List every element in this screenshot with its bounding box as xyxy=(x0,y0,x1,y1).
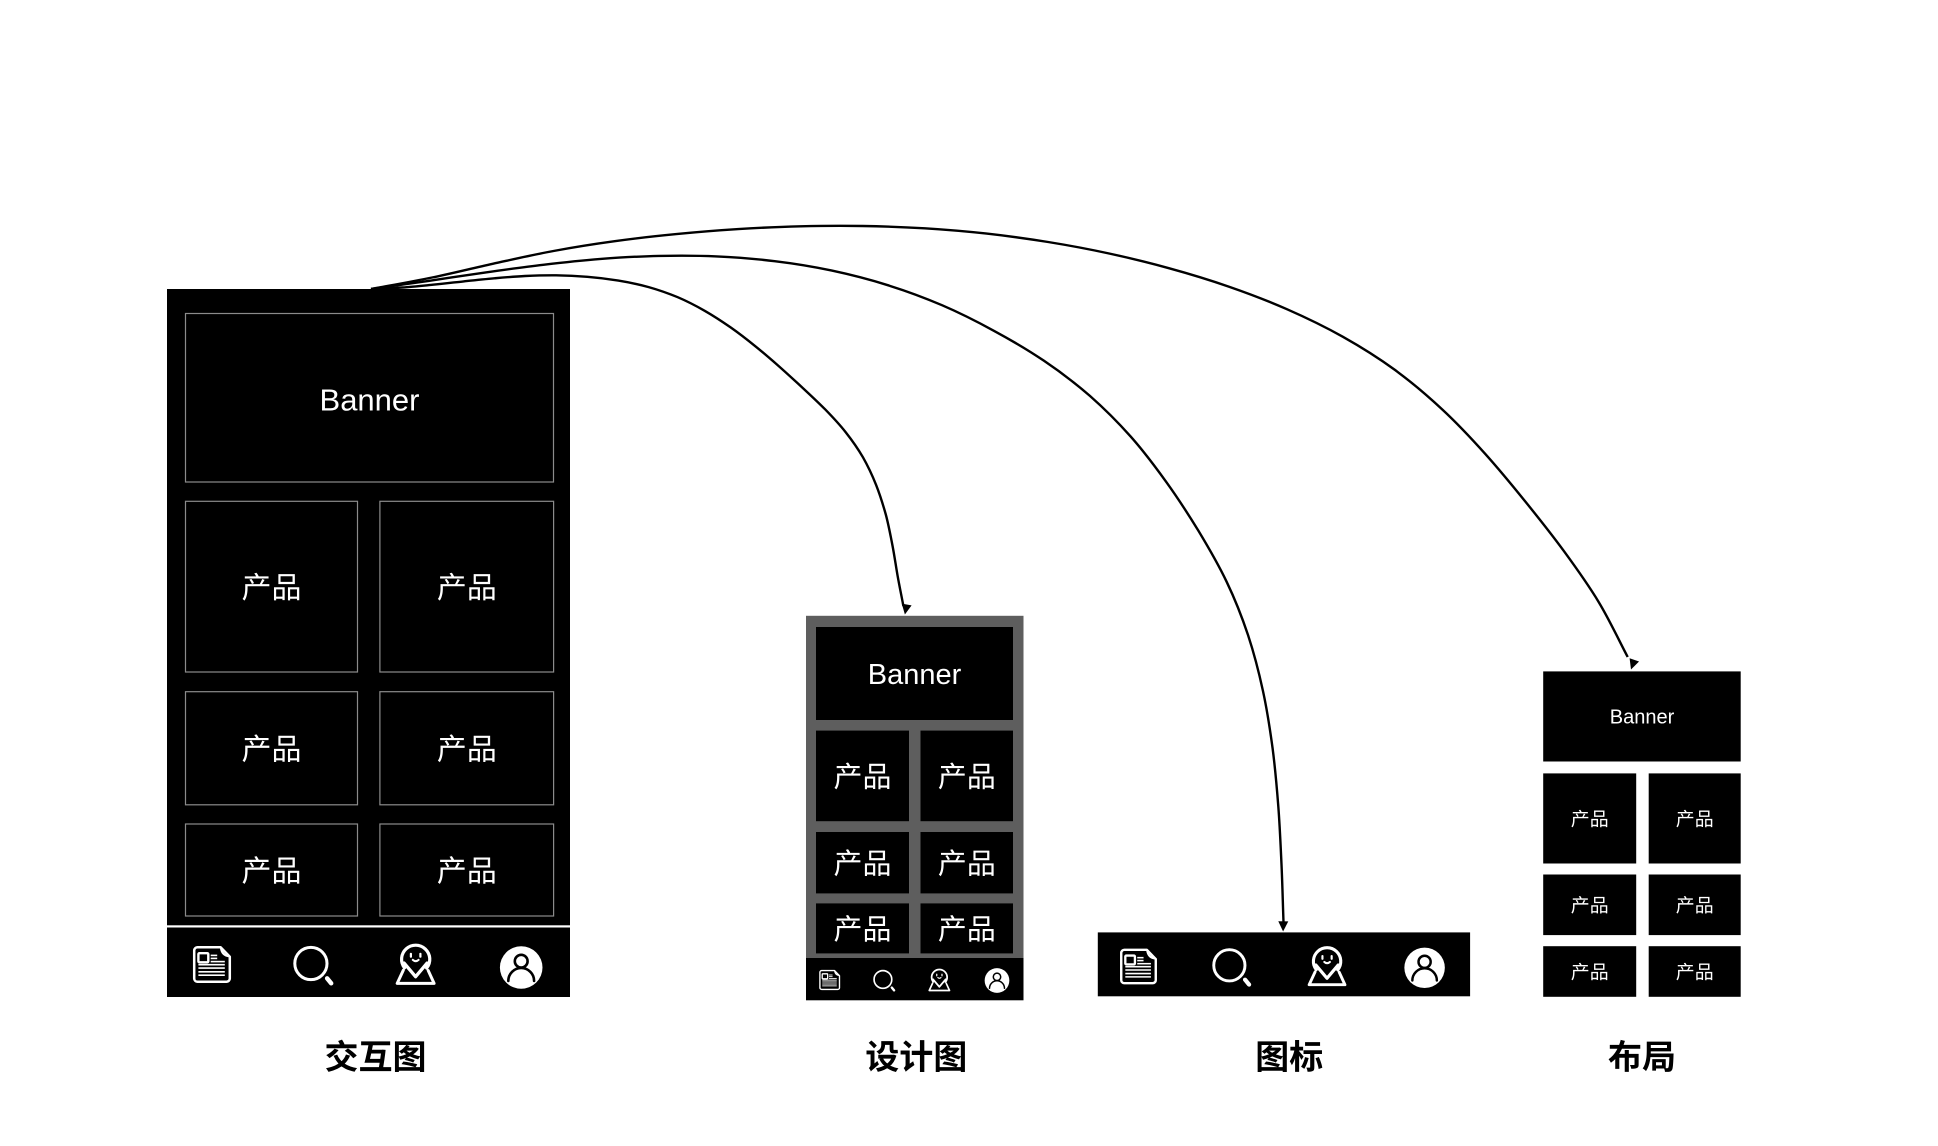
svg-text:Banner: Banner xyxy=(320,383,420,418)
svg-text:Banner: Banner xyxy=(1610,707,1675,729)
svg-text:Banner: Banner xyxy=(868,659,962,691)
